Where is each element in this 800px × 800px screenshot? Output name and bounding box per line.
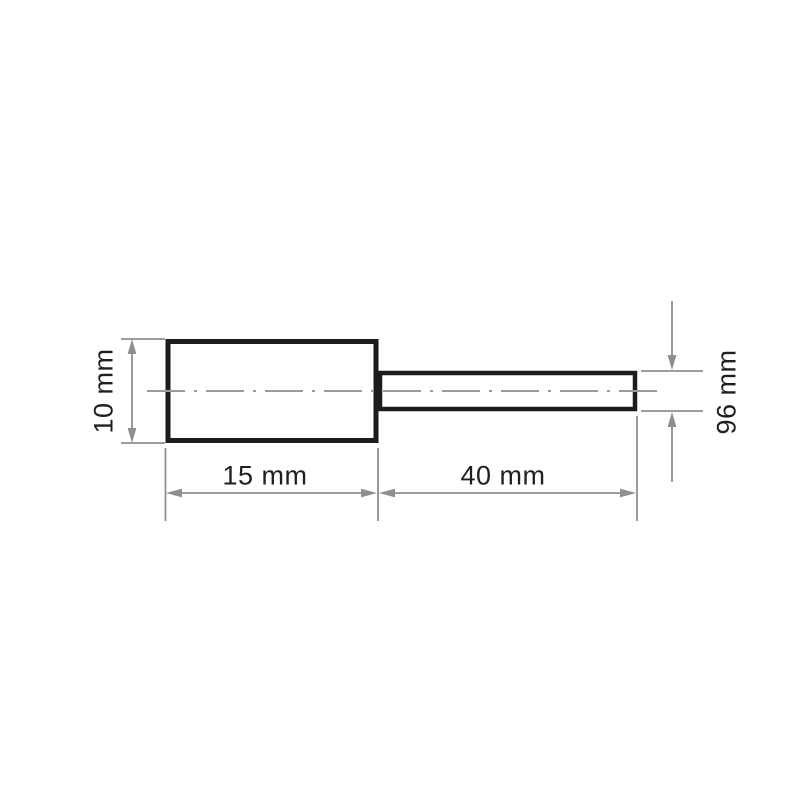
arrow-up-icon bbox=[668, 412, 677, 427]
arrow-up-icon bbox=[128, 339, 137, 354]
dim-label-shank-length: 40 mm bbox=[460, 463, 545, 490]
drawing-canvas: 10 mm 15 mm 40 mm 96 mm bbox=[0, 0, 800, 800]
arrow-down-icon bbox=[128, 428, 137, 443]
dim-label-shank-diameter: 96 mm bbox=[714, 349, 741, 434]
arrow-down-icon bbox=[668, 355, 677, 370]
technical-drawing bbox=[0, 0, 800, 800]
arrowheads-group bbox=[128, 339, 677, 497]
arrow-right-icon bbox=[361, 489, 377, 498]
arrow-right-icon bbox=[620, 489, 636, 498]
arrow-left-icon bbox=[166, 489, 182, 498]
arrow-left-icon bbox=[379, 489, 395, 498]
dim-label-body-diameter: 10 mm bbox=[91, 348, 118, 433]
dim-label-body-length: 15 mm bbox=[222, 463, 307, 490]
